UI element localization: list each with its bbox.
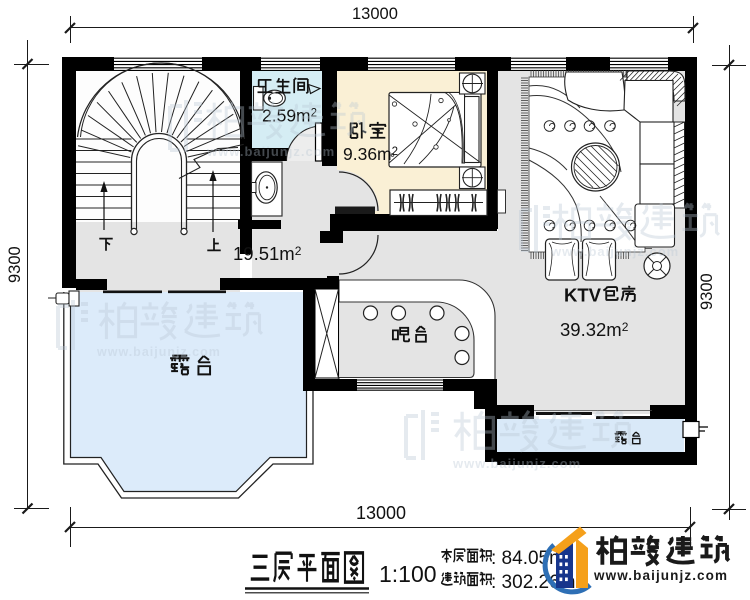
svg-text:39.32m2: 39.32m2 (560, 319, 629, 340)
svg-text:9.36m2: 9.36m2 (343, 144, 398, 164)
svg-text:9300: 9300 (698, 273, 716, 310)
svg-text:www.baijunjz.com: www.baijunjz.com (452, 456, 581, 471)
svg-text:KTV: KTV (564, 285, 602, 306)
svg-text:13000: 13000 (356, 503, 406, 523)
svg-text:9300: 9300 (6, 246, 24, 283)
svg-text:www.baijunjz.com: www.baijunjz.com (550, 244, 679, 259)
svg-text:13000: 13000 (352, 5, 398, 23)
svg-text:19.51m2: 19.51m2 (233, 243, 302, 264)
svg-text:www.baijunjz.com: www.baijunjz.com (96, 345, 221, 359)
svg-text:www.baijunjz.com: www.baijunjz.com (206, 144, 335, 159)
svg-text:1:100: 1:100 (379, 561, 437, 587)
svg-text:www.baijunjz.com: www.baijunjz.com (593, 568, 728, 583)
